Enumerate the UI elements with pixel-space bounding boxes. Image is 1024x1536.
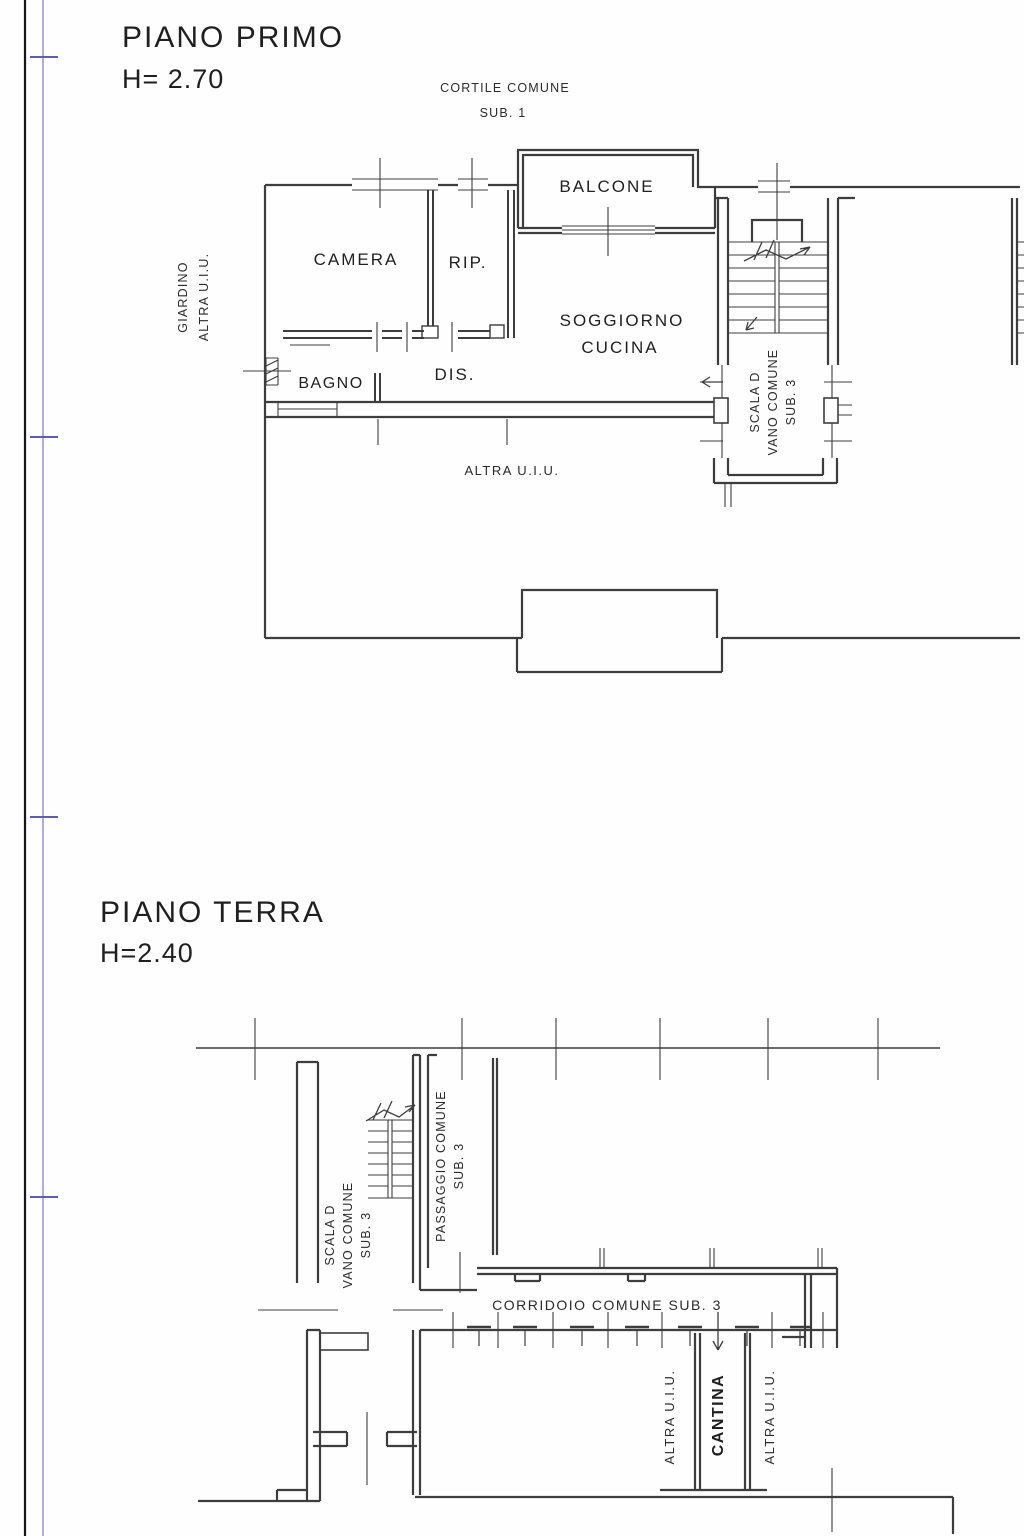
floor1-plan	[243, 150, 1024, 672]
floor1-flue-pillar	[490, 325, 504, 338]
margin-blue-ticks	[30, 57, 58, 1197]
giardino-label-line2: ALTRA U.I.U.	[197, 253, 211, 342]
floor0-pilaster	[320, 1333, 368, 1350]
room-soggiorno-label-line2: CUCINA	[581, 338, 658, 357]
altra-uiu-left-label: ALTRA U.I.U.	[662, 1369, 677, 1464]
floor0-walls	[198, 1055, 953, 1534]
room-bagno-label: BAGNO	[298, 375, 363, 392]
room-rip-label: RIP.	[449, 253, 488, 272]
giardino-label-line1: GIARDINO	[176, 261, 190, 332]
room-dis-label: DIS.	[434, 365, 475, 384]
floor0-height-label: H=2.40	[100, 938, 194, 968]
cortile-sub-label: SUB. 1	[480, 106, 527, 120]
floor1-scala-label-line1: SCALA D	[748, 371, 762, 432]
cortile-comune-label: CORTILE COMUNE	[440, 81, 570, 95]
cantina-label: CANTINA	[710, 1374, 727, 1457]
floor0-title: PIANO TERRA	[100, 896, 325, 929]
corridoio-label: CORRIDOIO COMUNE SUB. 3	[492, 1297, 722, 1313]
floor1-scala-label-line3: SUB. 3	[784, 379, 798, 426]
floor1-outer-walls	[265, 150, 1020, 672]
passaggio-label-line1: PASSAGGIO COMUNE	[434, 1090, 448, 1242]
floor1-stair-pilaster-right	[824, 398, 838, 423]
room-soggiorno-label-line1: SOGGIORNO	[560, 311, 685, 330]
floor1-scala-label-line2: VANO COMUNE	[766, 349, 780, 456]
floor0-plan	[196, 1018, 953, 1534]
floor1-stair-treads	[728, 242, 1024, 333]
passaggio-label-line2: SUB. 3	[452, 1143, 466, 1190]
sheet-margin-lines	[25, 0, 58, 1536]
floor0-boundary-ticks	[255, 1018, 878, 1080]
floor0-cellar-door-stems	[479, 1330, 800, 1346]
room-camera-label: CAMERA	[314, 250, 399, 269]
floor0-scala-label-line2: VANO COMUNE	[341, 1182, 355, 1289]
floor-plan-sheet: PIANO PRIMO H= 2.70 CORTILE COMUNE SUB. …	[0, 0, 1024, 1536]
floor1-title: PIANO PRIMO	[122, 21, 344, 54]
floor0-stair-treads	[368, 1120, 413, 1198]
altra-uiu-right-label: ALTRA U.I.U.	[762, 1369, 777, 1464]
room-balcone-label: BALCONE	[559, 177, 654, 196]
floor1-rip-wall-foot	[422, 326, 438, 338]
floor1-stair-pilaster-left	[714, 398, 728, 423]
floor-plan-drawing: PIANO PRIMO H= 2.70 CORTILE COMUNE SUB. …	[0, 0, 1024, 1536]
altra-uiu-floor1-label: ALTRA U.I.U.	[464, 463, 559, 478]
floor1-stairwell-walls	[714, 198, 1017, 483]
floor1-height-label: H= 2.70	[122, 64, 224, 94]
floor1-interior-walls	[283, 190, 514, 402]
floor0-scala-label-line3: SUB. 3	[359, 1212, 373, 1259]
floor0-scala-label-line1: SCALA D	[323, 1204, 337, 1265]
